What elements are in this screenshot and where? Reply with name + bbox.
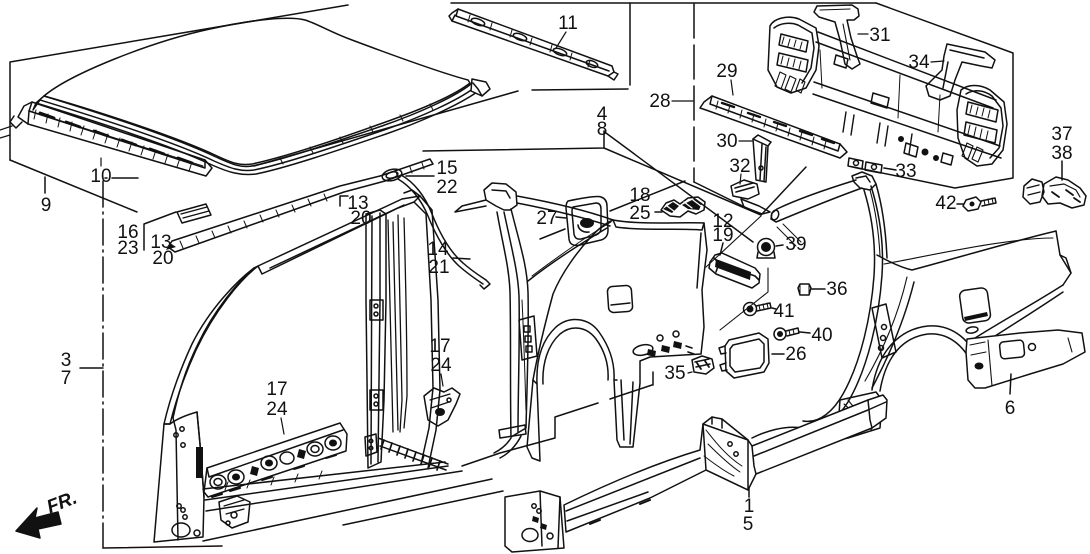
svg-text:5: 5 [743, 514, 754, 535]
svg-text:33: 33 [895, 161, 916, 182]
svg-text:17: 17 [266, 379, 287, 400]
svg-text:19: 19 [712, 225, 733, 246]
svg-text:17: 17 [429, 336, 450, 357]
svg-text:32: 32 [729, 156, 750, 177]
svg-text:31: 31 [869, 25, 890, 46]
svg-text:42: 42 [935, 193, 956, 214]
svg-text:29: 29 [716, 61, 737, 82]
svg-text:37: 37 [1051, 124, 1072, 145]
svg-text:20: 20 [152, 248, 173, 269]
svg-text:11: 11 [558, 13, 578, 34]
svg-text:22: 22 [436, 177, 457, 198]
svg-text:24: 24 [266, 399, 288, 420]
svg-text:26: 26 [785, 344, 806, 365]
svg-text:28: 28 [649, 91, 670, 112]
svg-text:38: 38 [1051, 143, 1072, 164]
svg-text:23: 23 [117, 238, 138, 259]
svg-text:15: 15 [436, 158, 457, 179]
svg-text:21: 21 [428, 257, 449, 278]
svg-text:35: 35 [664, 363, 685, 384]
svg-text:36: 36 [826, 279, 847, 300]
svg-text:24: 24 [430, 355, 452, 376]
svg-text:30: 30 [716, 131, 737, 152]
svg-text:34: 34 [908, 52, 930, 73]
svg-text:10: 10 [90, 166, 111, 187]
svg-text:FR.: FR. [44, 488, 80, 519]
svg-text:8: 8 [597, 119, 608, 140]
svg-text:27: 27 [536, 208, 557, 229]
svg-text:6: 6 [1005, 398, 1016, 419]
svg-text:9: 9 [41, 195, 52, 216]
svg-text:7: 7 [61, 368, 72, 389]
svg-text:40: 40 [811, 325, 832, 346]
svg-text:25: 25 [629, 203, 650, 224]
svg-text:41: 41 [773, 301, 794, 322]
svg-text:20: 20 [350, 208, 371, 229]
svg-text:39: 39 [785, 234, 806, 255]
